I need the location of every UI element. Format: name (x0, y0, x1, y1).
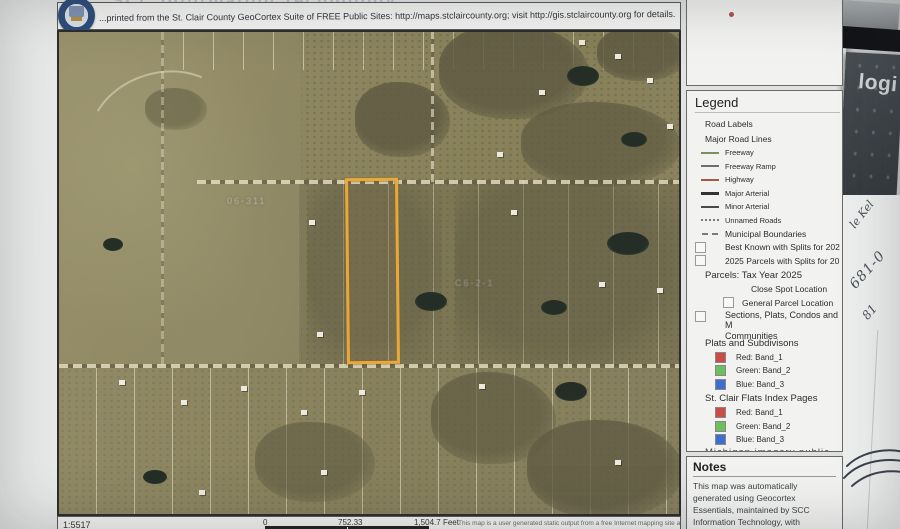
parcel-box-swatch (695, 242, 706, 253)
legend-item-flats-blue: Blue: Band_3 (695, 433, 842, 447)
red-band-swatch (715, 407, 726, 418)
pond (621, 132, 647, 147)
logitech-box: logi (838, 52, 900, 207)
legend-item-major-arterial: Major Arterial (695, 187, 842, 201)
woods (145, 88, 207, 130)
legend-item-best-known: Best Known with Splits for 202 (695, 241, 842, 255)
legend-item-unnamed-roads: Unnamed Roads (695, 214, 842, 228)
freeway-ramp-line-swatch (701, 165, 719, 167)
building (309, 220, 315, 225)
map-frame: 06-311 C6-2-1 (57, 30, 681, 516)
blue-band-swatch (715, 434, 726, 445)
parcel-boundary (161, 32, 164, 365)
woods (455, 184, 681, 364)
pond (555, 382, 587, 401)
pond (415, 292, 447, 311)
print-attribution-line: ...printed from the St. Clair County Geo… (99, 9, 675, 23)
building (317, 332, 323, 337)
legend-group-plats: Plats and Subdivisons (705, 338, 798, 349)
logitech-logo: logi (857, 70, 898, 97)
pen-scribble (842, 428, 900, 488)
municipal-boundary-swatch (702, 233, 718, 235)
building (359, 390, 365, 395)
freeway-line-swatch (701, 152, 719, 154)
building (199, 490, 205, 495)
location-dot-icon (729, 12, 734, 17)
scale-bar-strip: 1:5517 0 752.33 1,504.7 Feet This map is… (57, 516, 681, 529)
building (321, 470, 327, 475)
pond (103, 238, 123, 251)
building (615, 460, 621, 465)
pond (607, 232, 649, 255)
legend-item-2025-parcels: 2025 Parcels with Splits for 20 (695, 254, 842, 268)
legend-clipped-line: Michigan imagery public (705, 447, 842, 453)
legend-title: Legend (695, 95, 840, 113)
building (657, 288, 663, 293)
header-bar: ...printed from the St. Clair County Geo… (57, 2, 681, 30)
scale-tick-start: 0 (263, 518, 267, 527)
building (301, 410, 307, 415)
legend-group-major-road-lines: Major Road Lines (705, 134, 772, 144)
building (539, 90, 545, 95)
scale-tick-mid: 752.33 (338, 518, 362, 527)
legend-group-parcels-tax-year: Parcels: Tax Year 2025 (705, 270, 802, 281)
map-section-label: C6-2-1 (455, 278, 495, 288)
legend-item-freeway-ramp: Freeway Ramp (695, 160, 842, 174)
legend-item-flats-green: Green: Band_2 (695, 420, 842, 434)
legend-item-minor-arterial: Minor Arterial (695, 200, 842, 214)
legend-item-general-parcel: General Parcel Location (695, 296, 842, 310)
legend-item-close-spot: Close Spot Location (695, 283, 842, 297)
aerial-imagery: 06-311 C6-2-1 (59, 32, 679, 514)
scale-tick-end: 1,504.7 Feet (414, 518, 459, 527)
photo-of-printed-map: M 9, logi le Kel 681-0 81 SCC Informatio… (0, 0, 900, 529)
legend-item-flats-red: Red: Band_1 (695, 406, 842, 420)
woods (255, 422, 375, 502)
building (119, 380, 125, 385)
sections-box-swatch (695, 311, 706, 322)
parcel-box-swatch (695, 255, 706, 266)
unnamed-roads-line-swatch (701, 219, 719, 221)
legend-item-freeway: Freeway (695, 146, 842, 160)
building (667, 124, 673, 129)
road (197, 180, 681, 184)
building (241, 386, 247, 391)
map-disclaimer: This map is a user generated static outp… (458, 520, 680, 527)
legend-item-highway: Highway (695, 173, 842, 187)
scale-ratio: 1:5517 (63, 520, 91, 529)
highway-line-swatch (701, 179, 719, 181)
woods (521, 102, 681, 187)
red-band-swatch (715, 352, 726, 363)
building (497, 152, 503, 157)
green-band-swatch (715, 421, 726, 432)
legend-item-sections: Sections, Plats, Condos and MCommunities (695, 310, 842, 336)
notes-panel: Notes This map was automatically generat… (686, 456, 843, 529)
parcel-box-swatch (723, 297, 734, 308)
major-arterial-line-swatch (701, 192, 719, 195)
building (647, 78, 653, 83)
building (511, 210, 517, 215)
building (579, 40, 585, 45)
blue-band-swatch (715, 379, 726, 390)
pond (541, 300, 567, 315)
building (479, 384, 485, 389)
building (615, 54, 621, 59)
minor-arterial-line-swatch (701, 206, 719, 208)
pond (567, 66, 599, 86)
legend-item-plats-green: Green: Band_2 (695, 364, 842, 378)
legend-group-flats-index: St. Clair Flats Index Pages (705, 393, 817, 404)
building (599, 282, 605, 287)
green-band-swatch (715, 365, 726, 376)
black-device-edge (841, 26, 900, 52)
legend-item-municipal-boundaries: Municipal Boundaries (695, 227, 842, 241)
pond (143, 470, 167, 484)
building (181, 400, 187, 405)
overview-box (686, 0, 843, 86)
legend-group-road-labels: Road Labels (705, 119, 753, 129)
woods (355, 82, 450, 157)
map-section-label: 06-311 (227, 196, 266, 206)
notes-title: Notes (693, 460, 836, 477)
main-road (59, 364, 681, 368)
legend-item-plats-red: Red: Band_1 (695, 351, 842, 365)
woods (597, 30, 681, 81)
highlighted-parcel-outline (345, 178, 400, 365)
legend-item-plats-blue: Blue: Band_3 (695, 378, 842, 392)
notes-body: This map was automatically generated usi… (693, 481, 836, 529)
woods (527, 420, 681, 516)
road (431, 32, 434, 182)
legend-panel: Legend Road Labels Major Road Lines Free… (686, 90, 843, 452)
